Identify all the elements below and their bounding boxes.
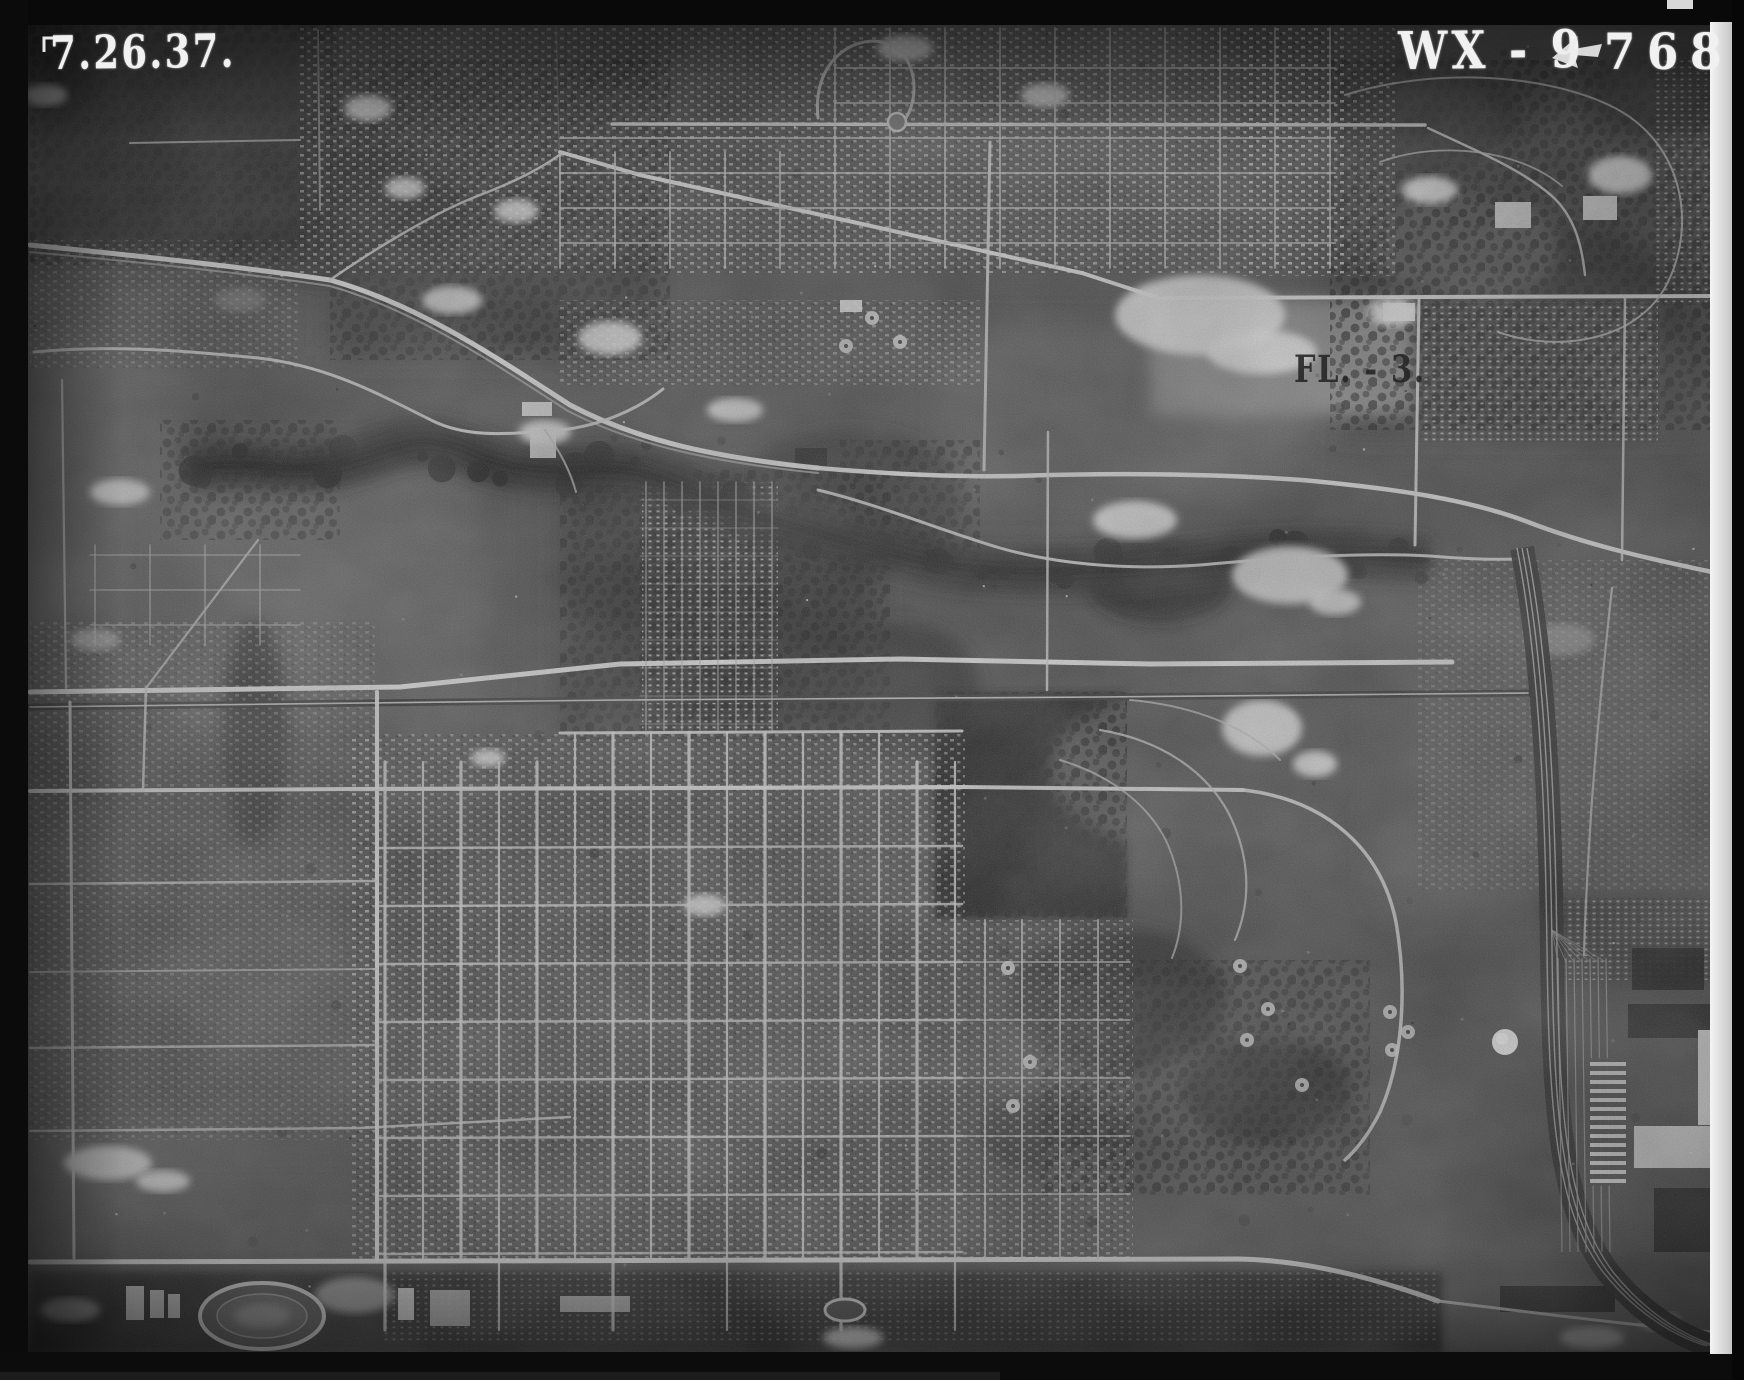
frame-number-stamp: 768 — [1604, 27, 1733, 77]
photo-emulsion-area — [23, 25, 1740, 1354]
aerial-photo-image — [0, 0, 1744, 1380]
left-edge-shading — [28, 25, 123, 1352]
film-border-bottom-sheen — [0, 1372, 1000, 1380]
aerial-photo-sheet: 7.26.37. WX - 9 768 FL. - 3. — [0, 0, 1744, 1380]
film-edge-notch — [1667, 0, 1693, 9]
date-stamp: 7.26.37. — [50, 28, 236, 76]
vignette-overlay — [28, 25, 1710, 1352]
film-edge-strip — [1710, 22, 1732, 1354]
film-border-right — [1732, 0, 1744, 1380]
ground-annotation-label: FL. - 3. — [1294, 351, 1426, 388]
index-arrow-mark — [1552, 36, 1604, 72]
bottom-edge-shading — [28, 1245, 1710, 1352]
film-border-left — [0, 0, 28, 1380]
